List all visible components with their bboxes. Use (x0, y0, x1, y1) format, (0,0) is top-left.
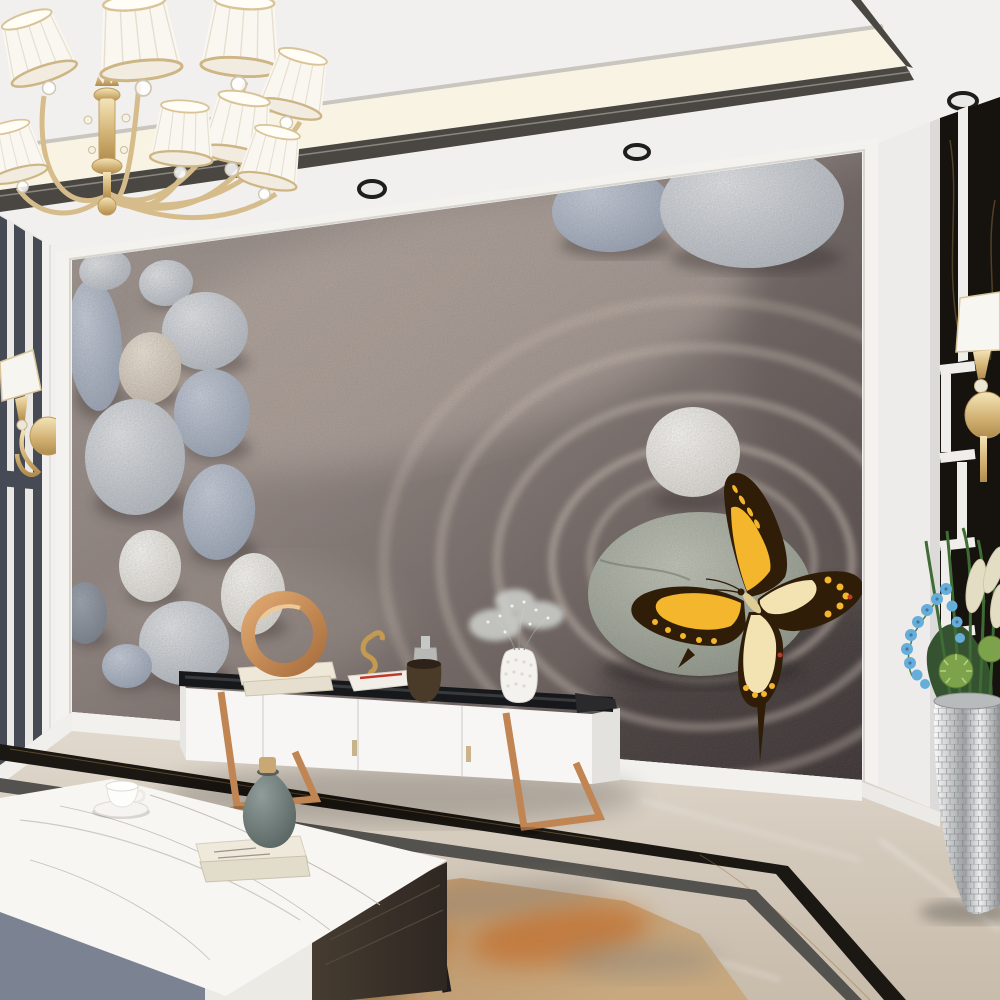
spiky-succulent (978, 636, 1000, 662)
sconce-shade (956, 292, 1000, 352)
scene-canvas (0, 0, 1000, 1000)
cup-rim (106, 781, 138, 791)
sconce-crystal (975, 380, 988, 393)
red-spot (848, 595, 853, 600)
wall-stripe (14, 224, 25, 756)
console-left-side (180, 674, 186, 760)
vase-rim (934, 693, 1000, 709)
left-wall-stripes (0, 216, 42, 765)
bottle-neck (421, 636, 430, 649)
sconce-drop-rod (980, 436, 987, 482)
wall-stripe (0, 216, 7, 765)
wooden-stopper (259, 757, 276, 773)
red-spot (778, 653, 783, 658)
leg-shadow (511, 827, 543, 835)
console-right-side (592, 708, 620, 784)
spotlight (359, 181, 385, 197)
column-ball (98, 197, 116, 215)
living-room-photo (0, 0, 1000, 1000)
door-handle (466, 746, 471, 762)
sconce-crystal (17, 420, 27, 430)
door-handle (352, 740, 357, 756)
vessel-mouth (407, 659, 441, 669)
spotlight (625, 145, 649, 159)
